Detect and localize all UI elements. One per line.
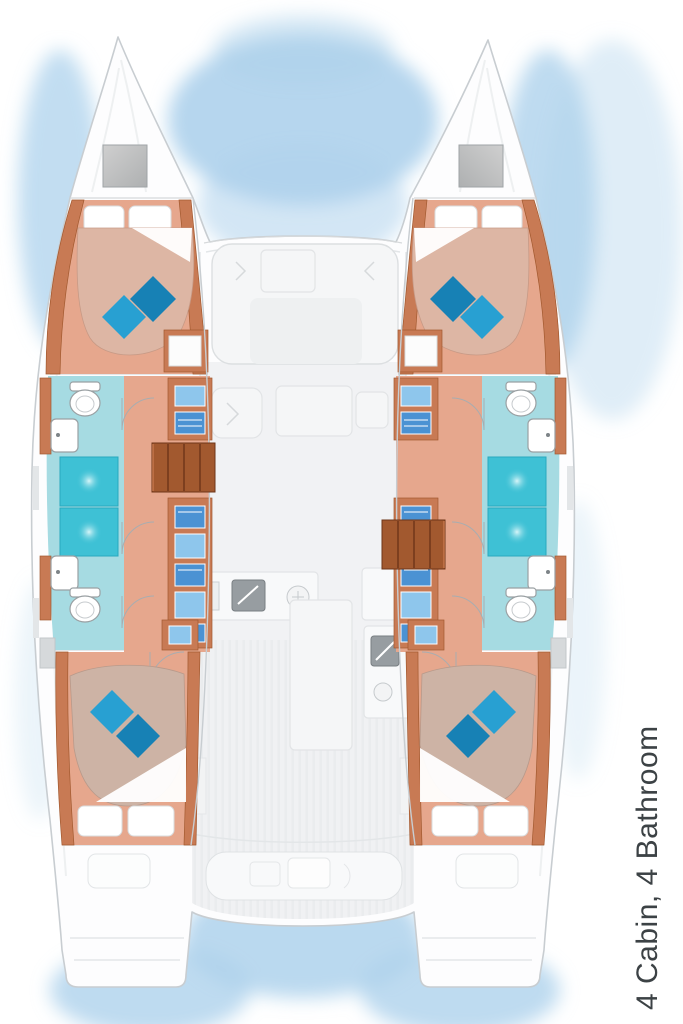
pillow [78, 806, 122, 836]
shower [60, 457, 118, 556]
burner-icon [374, 683, 392, 701]
toilet-icon [70, 382, 100, 416]
screenshot-root: 4 Cabin, 4 Bathroom [0, 0, 683, 1024]
starboard-stairs [382, 520, 445, 569]
hull-window [40, 638, 55, 668]
galley-island [290, 600, 352, 750]
sink-icon [51, 419, 78, 452]
bow-hatch [103, 145, 147, 187]
salon-table [261, 250, 315, 292]
toilet-icon [70, 588, 100, 622]
wardrobe [168, 378, 212, 440]
nacelle [192, 236, 414, 919]
engine-hatch [88, 854, 150, 888]
aft-cabin [40, 620, 200, 845]
port-stairs [152, 443, 215, 492]
bathrooms [33, 376, 212, 652]
floorplan-svg [0, 0, 683, 1024]
pillow [128, 806, 174, 836]
layout-caption: 4 Cabin, 4 Bathroom [628, 680, 668, 1010]
salon-sofa [212, 244, 398, 364]
sink-icon [51, 556, 78, 590]
forward-cabin [46, 200, 208, 374]
